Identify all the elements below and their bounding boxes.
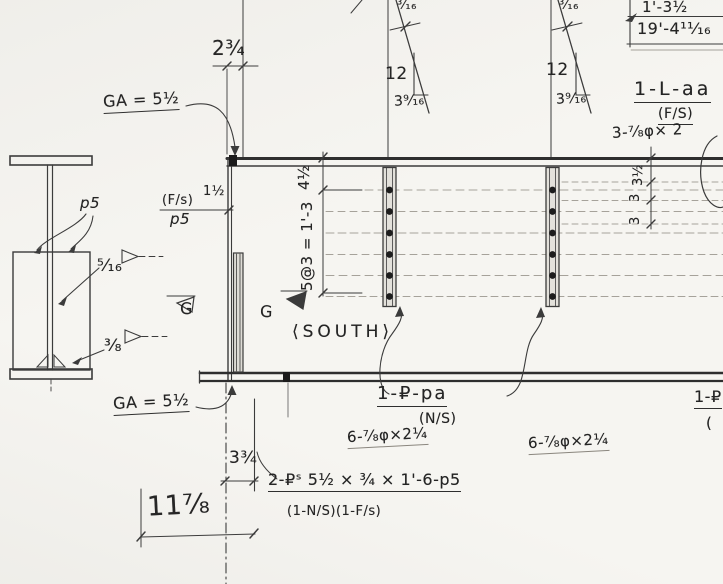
stiffener-plate-label: p5 bbox=[170, 212, 190, 227]
section-cut-label-right: G bbox=[260, 304, 273, 320]
angle-mark: 1-L-aa bbox=[634, 80, 711, 99]
i-beam-section bbox=[10, 156, 167, 393]
gage-bottom-text: GA = 5½ bbox=[113, 390, 190, 416]
end-stiffener-plate bbox=[234, 253, 244, 372]
bolted-plate-left bbox=[383, 168, 396, 307]
dim-near-span: 1'-3½ bbox=[642, 0, 688, 15]
slope-left-run: 3⁹⁄₁₆ bbox=[394, 93, 425, 109]
edge-mark-paren: ( bbox=[706, 416, 712, 431]
dim-plate-offset: 3¾ bbox=[229, 450, 257, 467]
dim-total-span: 19'-4¹¹⁄₁₆ bbox=[637, 21, 711, 37]
view-name-label: ⟨SOUTH⟩ bbox=[292, 324, 393, 341]
angle-side: (F/S) bbox=[658, 107, 693, 121]
edge-mark: 1-₽ bbox=[694, 389, 722, 405]
dim-first-row: 4½ bbox=[297, 165, 312, 190]
slope-right-weld-size: ³⁄₁₆ bbox=[559, 0, 579, 12]
bolted-plate-right bbox=[546, 168, 559, 307]
dim-end-offset: 2¾ bbox=[212, 38, 245, 58]
shop-drawing-scan: GA = 5½ 2¾ ³⁄₁₆ 12 3⁹⁄₁₆ ³⁄₁₆ 12 3⁹⁄₁₆ 1… bbox=[0, 0, 723, 584]
splice-bolts-left: 6-⁷⁄₈φ×2¼ bbox=[347, 426, 428, 445]
drawing-linework bbox=[0, 0, 723, 584]
angle-mark-text: 1-L-aa bbox=[634, 78, 711, 103]
weld-flag-icon bbox=[122, 250, 138, 263]
dim-right-row-3: 3 bbox=[629, 216, 642, 225]
gage-top-text: GA = 5½ bbox=[103, 88, 180, 114]
end-stiffener-mark-text: 2-₽ˢ 5½ × ¾ × 1'-6-p5 bbox=[268, 470, 461, 492]
end-stiffener-sides: (1-N/S)(1-F/s) bbox=[287, 505, 381, 518]
section-plate-label: p5 bbox=[80, 196, 100, 211]
leader-lines bbox=[196, 136, 723, 479]
edge-mark-text: 1-₽ bbox=[694, 387, 722, 409]
stiffener-offset-dim: 1½ bbox=[203, 185, 225, 198]
splice-bolts-right: 6-⁷⁄₈φ×2¼ bbox=[528, 432, 609, 451]
slope-right-rise: 12 bbox=[546, 62, 569, 79]
section-web-weld-size: ⁵⁄₁₆ bbox=[97, 258, 122, 275]
slope-left-rise: 12 bbox=[385, 66, 408, 83]
dim-right-row-2: 3 bbox=[629, 193, 642, 202]
section-flange-weld-size: ³⁄₈ bbox=[104, 338, 122, 355]
slope-left-weld-size: ³⁄₁₆ bbox=[397, 0, 417, 12]
end-stiffener-mark: 2-₽ˢ 5½ × ¾ × 1'-6-p5 bbox=[268, 472, 461, 488]
dim-right-row-1: 3½ bbox=[632, 164, 645, 186]
gage-bottom-label: GA = 5½ bbox=[113, 392, 190, 412]
splice-bolts-left-text: 6-⁷⁄₈φ×2¼ bbox=[347, 424, 429, 449]
weld-flag-icon bbox=[125, 330, 141, 343]
dim-row-spacing: 5@3 = 1'-3 bbox=[300, 201, 315, 291]
splice-mark: 1-₽-pa bbox=[377, 385, 447, 403]
slope-right-run: 3⁹⁄₁₆ bbox=[556, 91, 587, 107]
splice-bolts-right-text: 6-⁷⁄₈φ×2¼ bbox=[528, 430, 610, 455]
girder-elevation bbox=[200, 158, 723, 417]
angle-bolts: 3-⁷⁄₈φ× 2 bbox=[612, 122, 683, 141]
stiffener-side-label: (F/s) bbox=[162, 194, 193, 207]
gage-top-label: GA = 5½ bbox=[103, 90, 180, 110]
section-cut-label-left: G bbox=[180, 301, 193, 317]
splice-mark-text: 1-₽-pa bbox=[377, 383, 447, 407]
dim-bottom-width: 11⁷⁄₈ bbox=[146, 490, 210, 520]
